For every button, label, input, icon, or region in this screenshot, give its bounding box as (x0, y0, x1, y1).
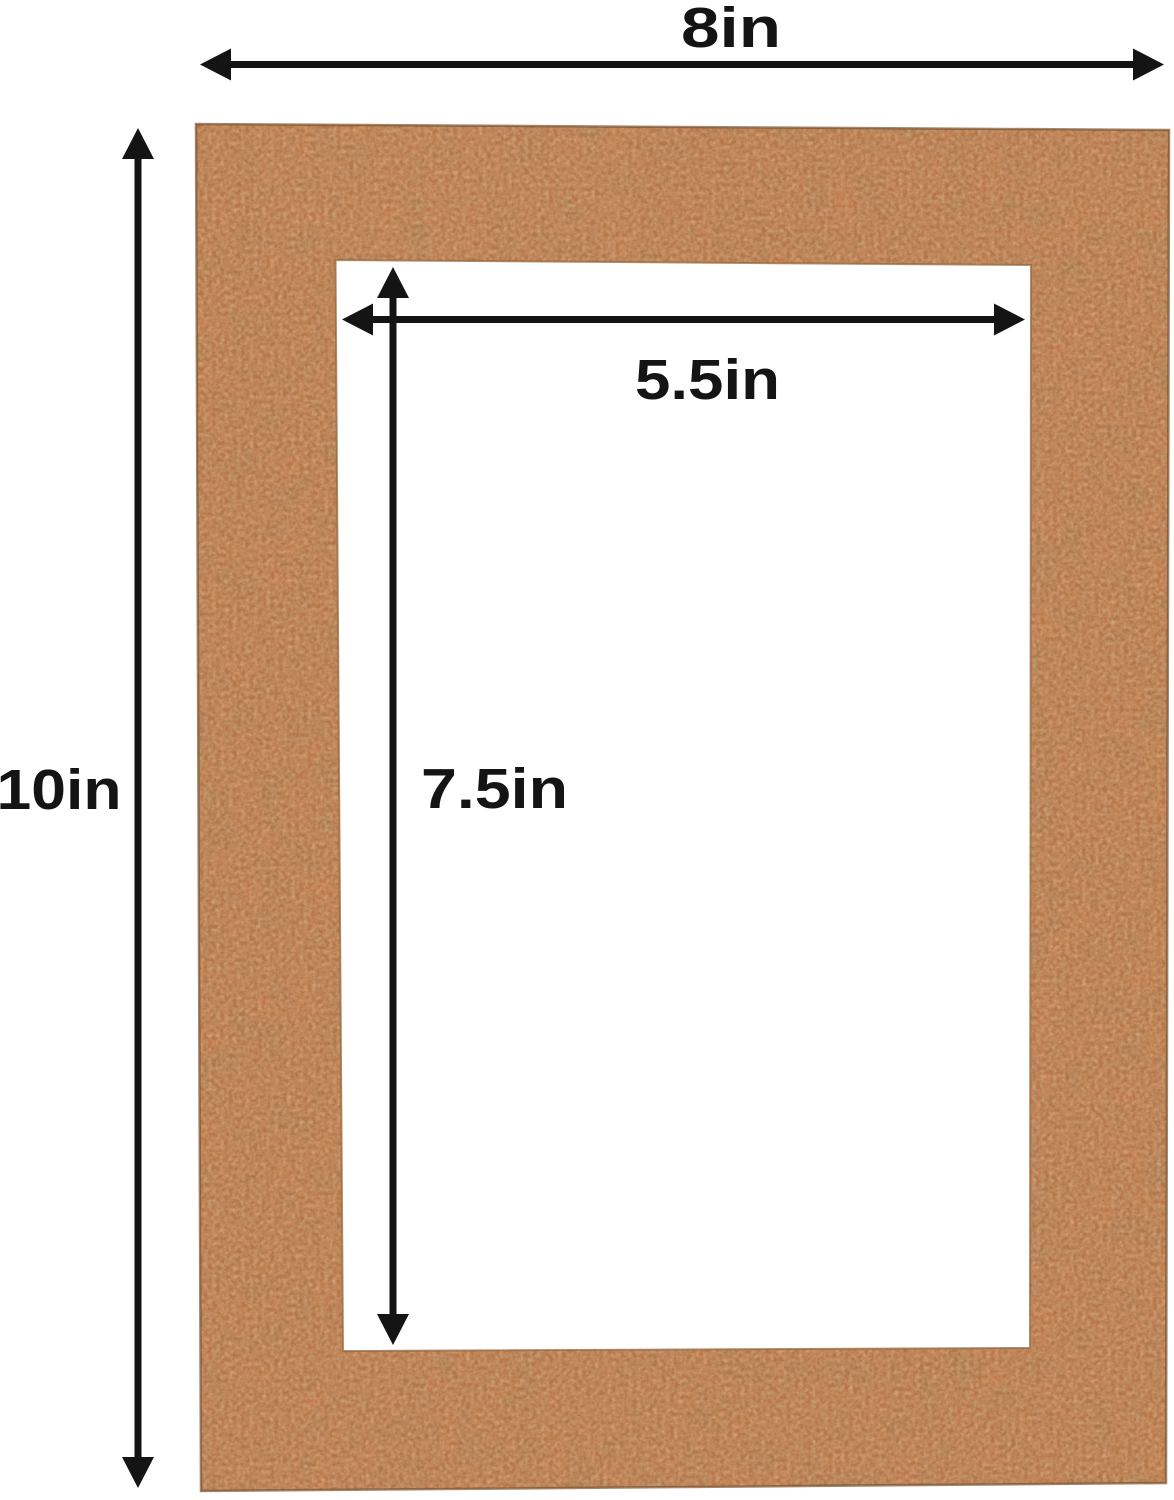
svg-text:5.5in: 5.5in (635, 348, 780, 412)
svg-text:8in: 8in (681, 0, 781, 60)
svg-text:7.5in: 7.5in (421, 757, 568, 821)
svg-text:10in: 10in (0, 758, 122, 822)
